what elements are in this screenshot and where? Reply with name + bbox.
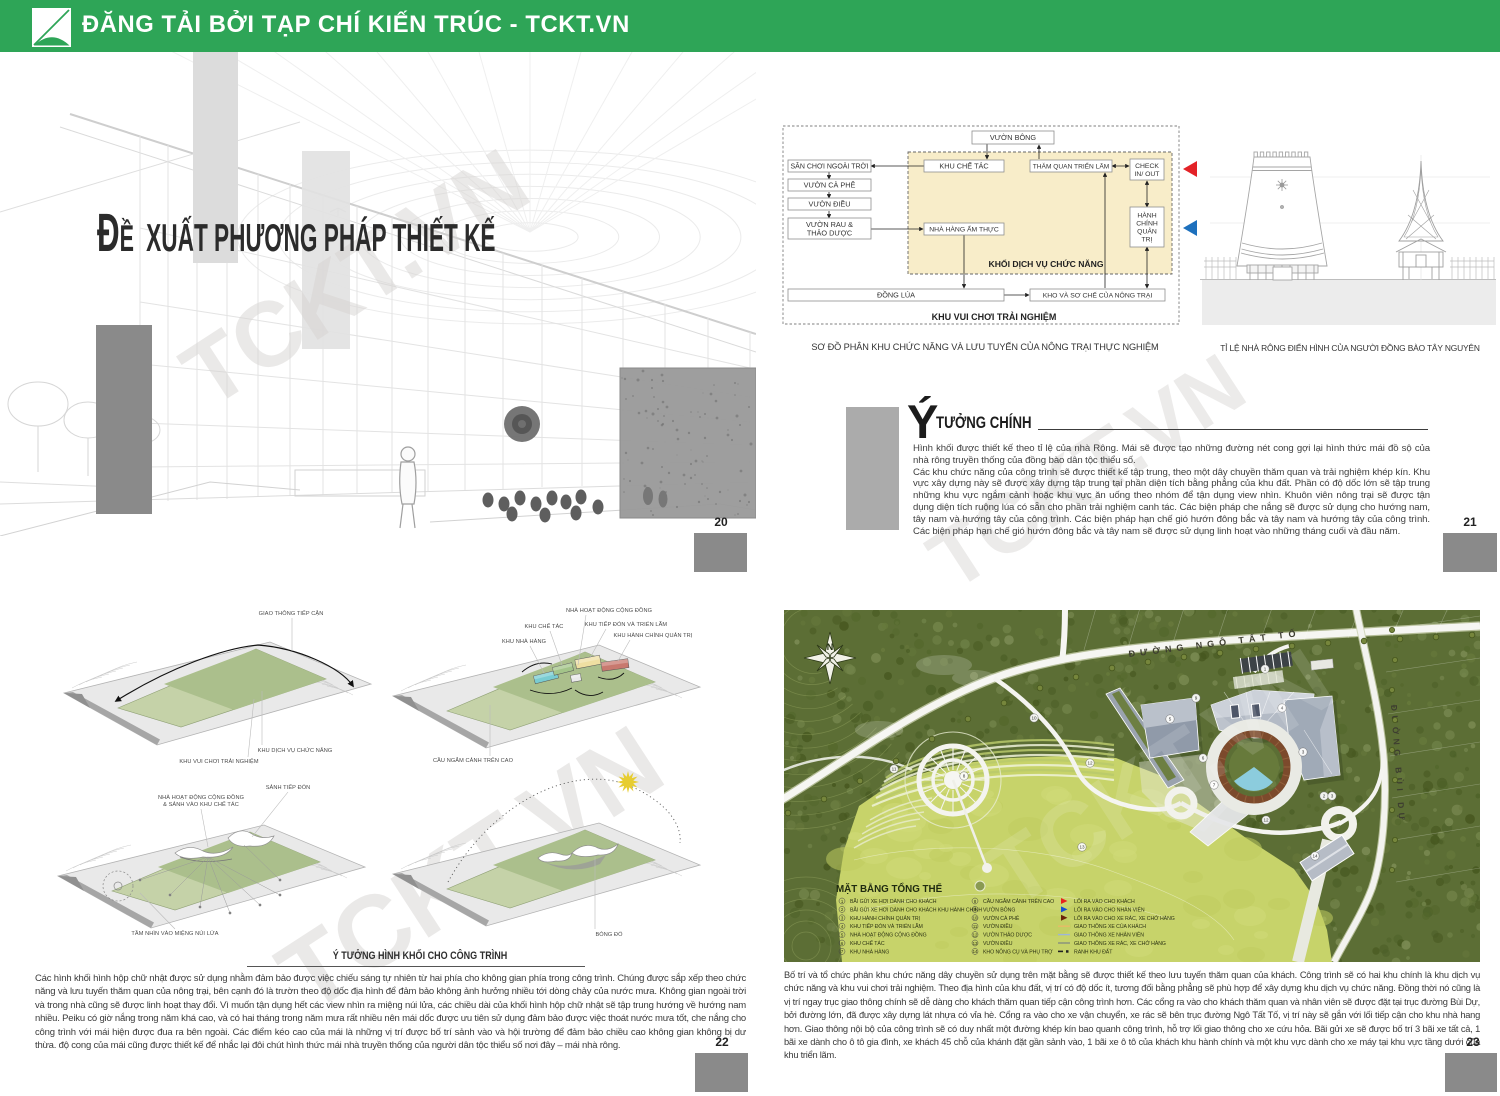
svg-text:13: 13 <box>973 941 978 946</box>
svg-text:SÂN CHƠI NGOÀI TRỜI: SÂN CHƠI NGOÀI TRỜI <box>791 162 869 171</box>
svg-text:VƯỜN ĐIỀU: VƯỜN ĐIỀU <box>808 199 850 209</box>
svg-text:BÃI GỬI XE HƠI DÀNH CHO KHÁCH: BÃI GỬI XE HƠI DÀNH CHO KHÁCH KHU HÀNH C… <box>850 906 982 913</box>
svg-text:HÀNH: HÀNH <box>1137 210 1156 219</box>
svg-text:14: 14 <box>973 949 978 954</box>
svg-text:8: 8 <box>963 774 966 779</box>
svg-text:KHỐI DỊCH VỤ CHỨC NĂNG: KHỐI DỊCH VỤ CHỨC NĂNG <box>988 258 1103 269</box>
svg-text:GIAO THÔNG XE NHÂN VIÊN: GIAO THÔNG XE NHÂN VIÊN <box>1074 931 1144 939</box>
svg-text:10: 10 <box>973 916 978 921</box>
svg-text:VƯỜN ĐIỀU: VƯỜN ĐIỀU <box>983 940 1013 947</box>
svg-text:VƯỜN ĐIỀU: VƯỜN ĐIỀU <box>983 923 1013 930</box>
svg-text:IN/ OUT: IN/ OUT <box>1135 171 1160 178</box>
svg-text:& SẢNH VÀO KHU CHẾ TÁC: & SẢNH VÀO KHU CHẾ TÁC <box>163 801 239 808</box>
svg-text:GIAO THÔNG TIẾP CẬN: GIAO THÔNG TIẾP CẬN <box>259 610 324 617</box>
svg-text:12: 12 <box>1263 818 1269 823</box>
svg-text:QUẢN: QUẢN <box>1137 226 1157 235</box>
svg-text:KHU CHẾ TÁC: KHU CHẾ TÁC <box>939 161 988 171</box>
svg-text:VƯỜN THẢO DƯỢC: VƯỜN THẢO DƯỢC <box>983 932 1032 939</box>
svg-text:3: 3 <box>1331 794 1334 799</box>
svg-text:KHU NHÀ HÀNG: KHU NHÀ HÀNG <box>850 948 889 955</box>
svg-text:KHU CHẾ TÁC: KHU CHẾ TÁC <box>525 623 564 630</box>
svg-text:14: 14 <box>1312 854 1318 859</box>
svg-text:BÃI GỬI XE HƠI DÀNH CHO KHÁCH: BÃI GỬI XE HƠI DÀNH CHO KHÁCH <box>850 898 937 905</box>
svg-text:VƯỜN BÔNG: VƯỜN BÔNG <box>983 906 1015 913</box>
svg-text:KHO NÔNG CỤ VÀ PHỤ TRỢ: KHO NÔNG CỤ VÀ PHỤ TRỢ <box>983 948 1053 955</box>
svg-text:KHU HÀNH CHÍNH QUẢN TRỊ: KHU HÀNH CHÍNH QUẢN TRỊ <box>850 915 920 922</box>
svg-text:10: 10 <box>1031 716 1037 721</box>
svg-text:CẦU NGẮM CẢNH TRÊN CAO: CẦU NGẮM CẢNH TRÊN CAO <box>433 756 514 764</box>
svg-text:MẶT BẰNG TỔNG THỂ: MẶT BẰNG TỔNG THỂ <box>836 883 943 895</box>
svg-text:3: 3 <box>1302 750 1305 755</box>
svg-text:CHÍNH: CHÍNH <box>1136 218 1158 227</box>
svg-text:NHÀ HOẠT ĐỘNG CỘNG ĐỒNG: NHÀ HOẠT ĐỘNG CỘNG ĐỒNG <box>850 932 927 939</box>
svg-text:VƯỜN BÔNG: VƯỜN BÔNG <box>990 133 1036 142</box>
svg-text:KHU DỊCH VỤ CHỨC NĂNG: KHU DỊCH VỤ CHỨC NĂNG <box>258 747 333 754</box>
svg-text:GIAO THÔNG XE RÁC, XE CHỞ HÀNG: GIAO THÔNG XE RÁC, XE CHỞ HÀNG <box>1074 940 1166 947</box>
svg-text:KHU TIẾP ĐÓN VÀ TRIỂN LÃM: KHU TIẾP ĐÓN VÀ TRIỂN LÃM <box>850 923 923 930</box>
svg-text:GIAO THÔNG XE CỦA KHÁCH: GIAO THÔNG XE CỦA KHÁCH <box>1074 923 1146 930</box>
svg-text:SẢNH TIẾP ĐÓN: SẢNH TIẾP ĐÓN <box>266 784 311 791</box>
svg-text:KHU TIẾP ĐÓN VÀ TRIỂN LÃM: KHU TIẾP ĐÓN VÀ TRIỂN LÃM <box>585 621 668 628</box>
svg-text:KHU CHẾ TÁC: KHU CHẾ TÁC <box>850 940 885 947</box>
svg-text:TRỊ: TRỊ <box>1142 236 1153 243</box>
svg-text:KHU VUI CHƠI TRẢI NGHIỆM: KHU VUI CHƠI TRẢI NGHIỆM <box>932 311 1057 322</box>
svg-text:KHU VUI CHƠI TRẢI NGHIỆM: KHU VUI CHƠI TRẢI NGHIỆM <box>179 757 258 765</box>
svg-text:KHU HÀNH CHÍNH QUẢN TRỊ: KHU HÀNH CHÍNH QUẢN TRỊ <box>614 632 693 639</box>
svg-text:NHÀ HÀNG ẨM THỰC: NHÀ HÀNG ẨM THỰC <box>929 224 999 233</box>
svg-text:TẦM NHÌN VÀO MIỆNG NÚI LỬA: TẦM NHÌN VÀO MIỆNG NÚI LỬA <box>131 929 218 937</box>
svg-text:VƯỜN CÀ PHÊ: VƯỜN CÀ PHÊ <box>983 914 1020 922</box>
svg-text:LỐI RA VÀO CHO XE RÁC, XE CHỞ: LỐI RA VÀO CHO XE RÁC, XE CHỞ HÀNG <box>1074 915 1175 922</box>
svg-text:ĐỒNG LÚA: ĐỒNG LÚA <box>877 290 915 300</box>
svg-text:LỐI RA VÀO CHO KHÁCH: LỐI RA VÀO CHO KHÁCH <box>1074 898 1135 905</box>
svg-text:KHU NHÀ HÀNG: KHU NHÀ HÀNG <box>502 638 546 645</box>
svg-text:NHÀ HOẠT ĐỘNG CỘNG ĐỒNG: NHÀ HOẠT ĐỘNG CỘNG ĐỒNG <box>158 794 244 801</box>
svg-text:2: 2 <box>1323 794 1326 799</box>
svg-text:N: N <box>827 642 834 652</box>
svg-text:CHECK: CHECK <box>1135 163 1159 170</box>
svg-text:THẢO DƯỢC: THẢO DƯỢC <box>807 228 852 237</box>
svg-text:12: 12 <box>973 932 978 937</box>
svg-text:VƯỜN CÀ PHÊ: VƯỜN CÀ PHÊ <box>804 181 856 190</box>
svg-text:LỐI RA VÀO CHO NHÂN VIÊN: LỐI RA VÀO CHO NHÂN VIÊN <box>1074 905 1145 913</box>
svg-text:11: 11 <box>973 924 978 929</box>
svg-text:THĂM QUAN TRIỂN LÃM: THĂM QUAN TRIỂN LÃM <box>1033 161 1109 170</box>
svg-text:11: 11 <box>892 767 897 772</box>
svg-text:NHÀ HOẠT ĐỘNG CỘNG ĐỒNG: NHÀ HOẠT ĐỘNG CỘNG ĐỒNG <box>566 607 652 614</box>
svg-text:BÓNG ĐỔ: BÓNG ĐỔ <box>595 931 623 938</box>
svg-text:RANH KHU ĐẤT: RANH KHU ĐẤT <box>1074 948 1113 955</box>
